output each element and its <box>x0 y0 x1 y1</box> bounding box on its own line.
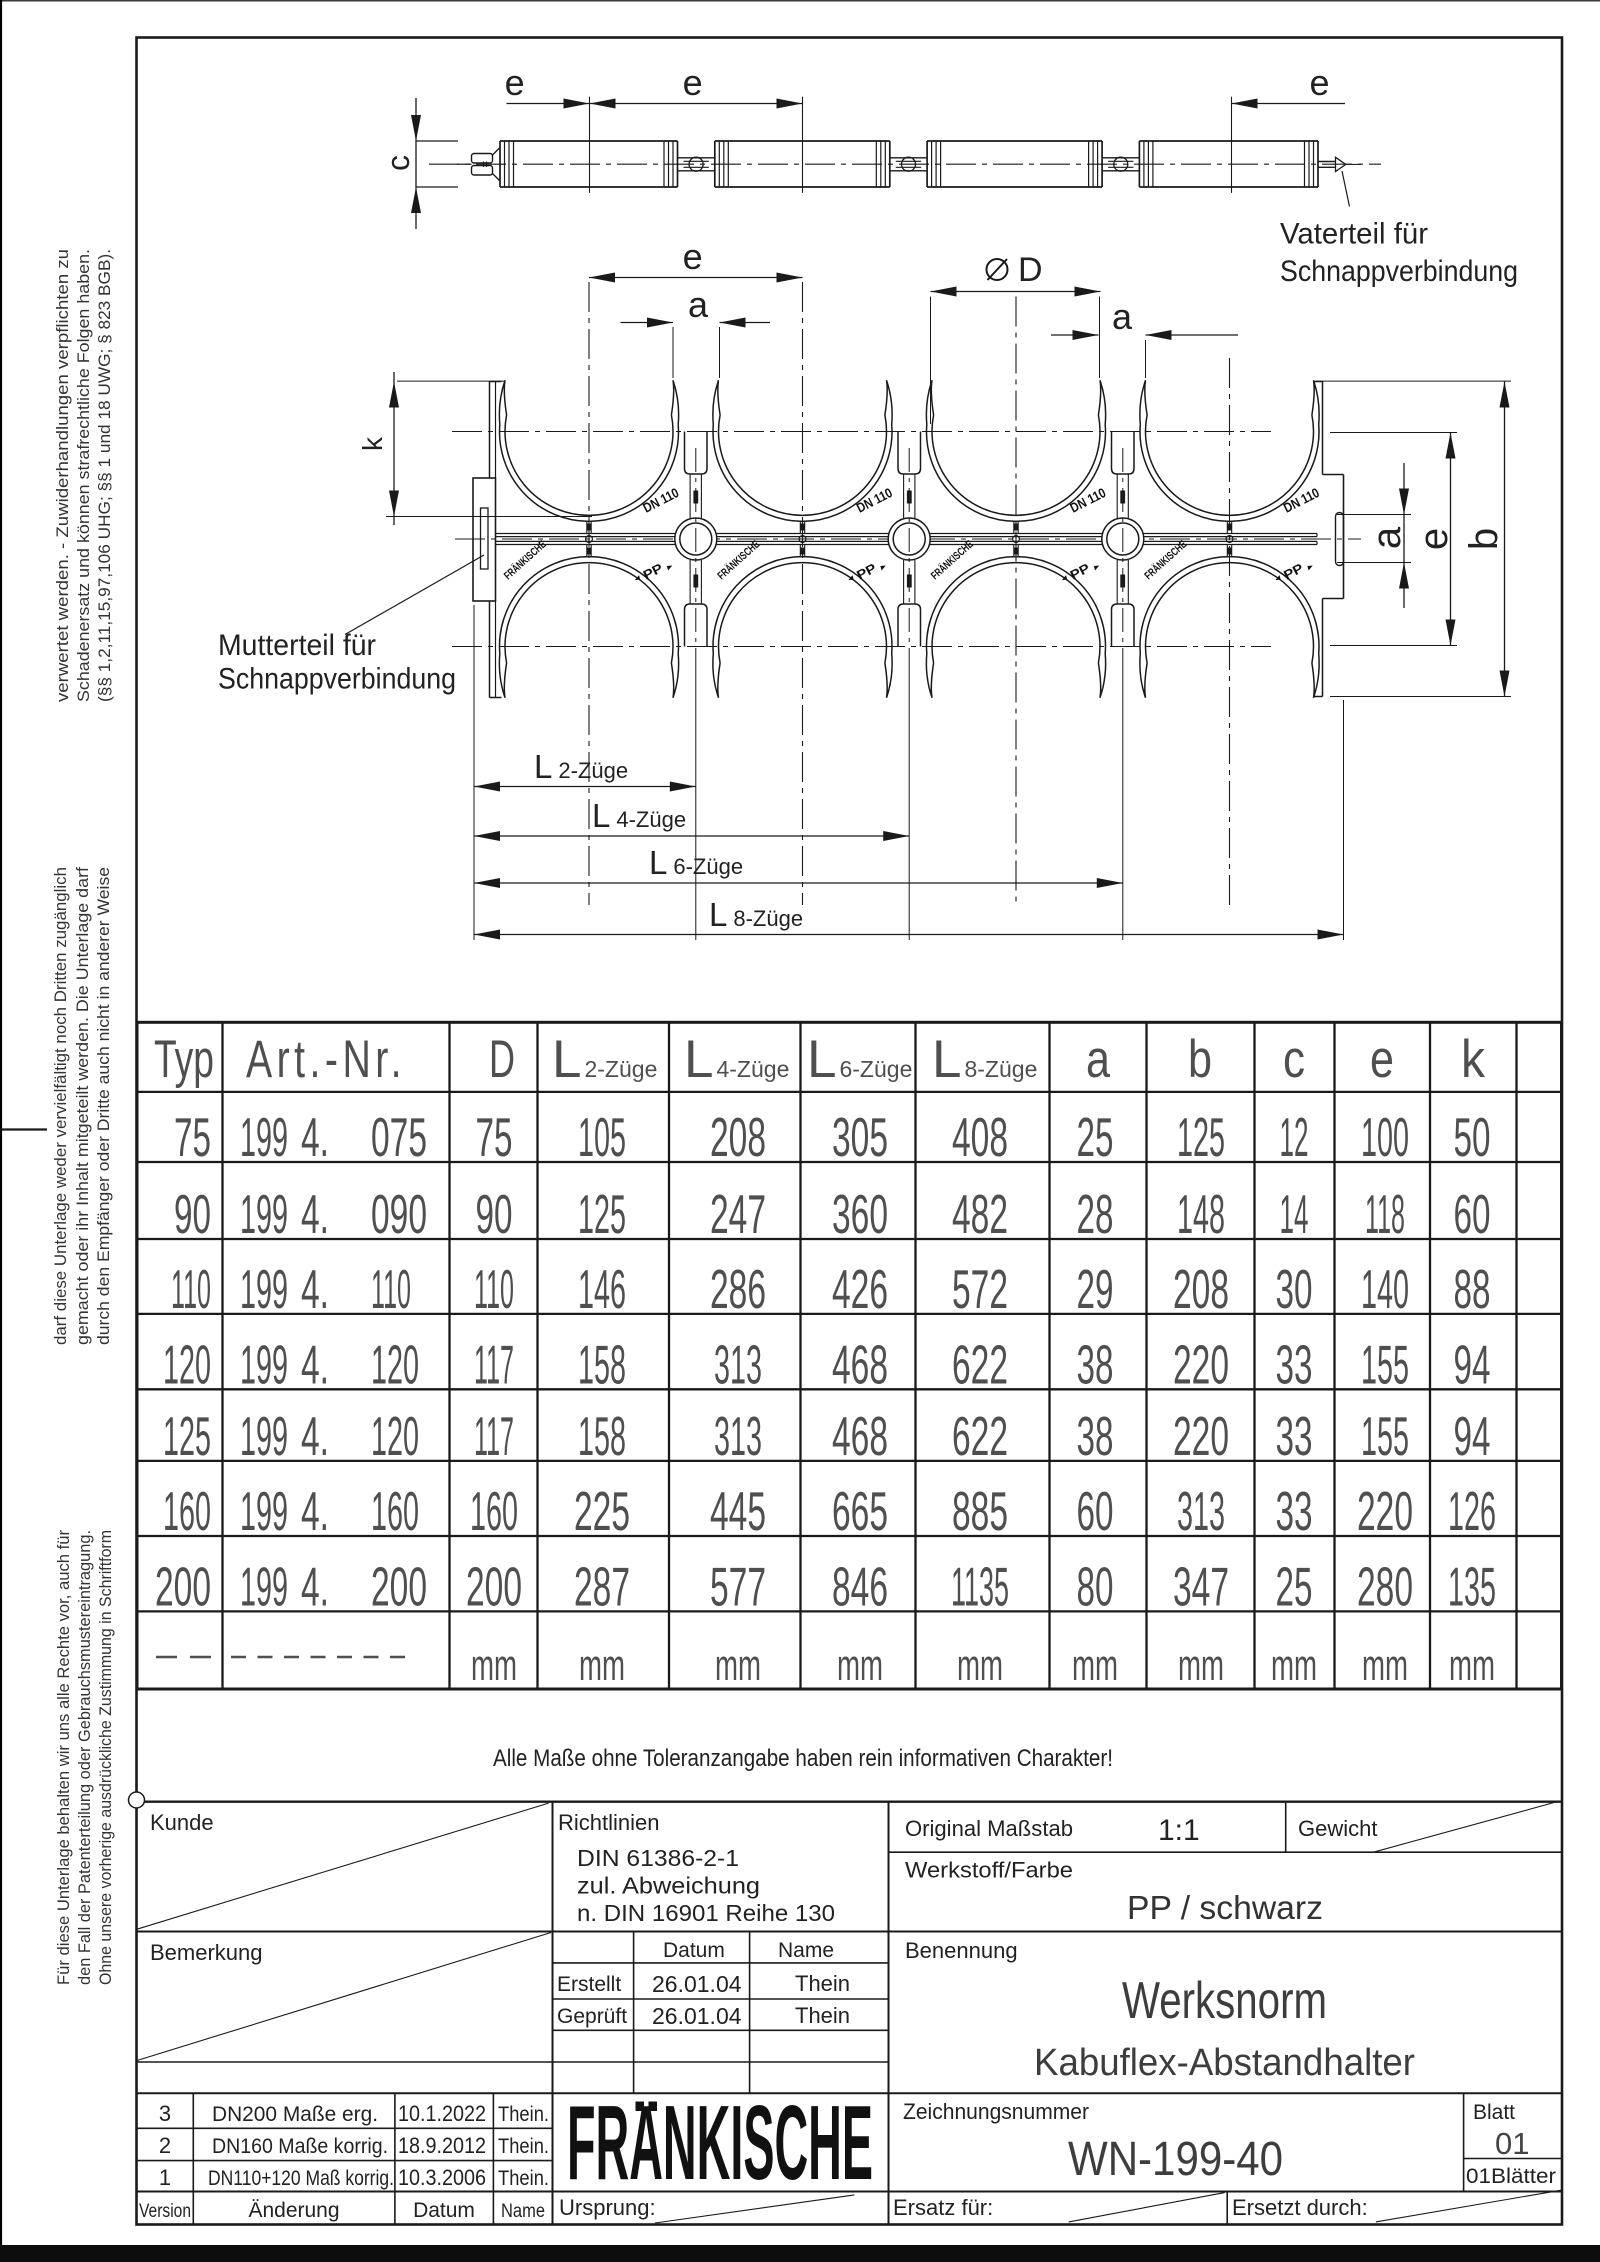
svg-text:50: 50 <box>1454 1106 1491 1168</box>
svg-text:110: 110 <box>171 1258 211 1320</box>
svg-text:665: 665 <box>832 1480 888 1542</box>
svg-text:Werkstoff/Farbe: Werkstoff/Farbe <box>905 1858 1073 1883</box>
svg-text:622: 622 <box>952 1405 1008 1467</box>
svg-text:25: 25 <box>1276 1555 1313 1617</box>
svg-text:445: 445 <box>710 1480 766 1542</box>
svg-text:426: 426 <box>832 1258 888 1320</box>
svg-text:38: 38 <box>1077 1405 1114 1467</box>
svg-text:DIN 61386-2-1: DIN 61386-2-1 <box>577 1845 739 1871</box>
svg-text:mm: mm <box>471 1641 517 1690</box>
svg-text:Thein.: Thein. <box>498 2135 549 2158</box>
svg-text:Bemerkung: Bemerkung <box>150 1940 263 1965</box>
svg-text:4.: 4. <box>301 1333 329 1395</box>
svg-text:26.01.04: 26.01.04 <box>652 2003 742 2029</box>
svg-text:D: D <box>1018 251 1043 289</box>
svg-text:225: 225 <box>574 1480 630 1542</box>
svg-text:117: 117 <box>474 1405 514 1467</box>
svg-text:846: 846 <box>832 1555 888 1617</box>
svg-text:12: 12 <box>1280 1106 1309 1168</box>
svg-text:WN-199-40: WN-199-40 <box>1068 2133 1283 2186</box>
svg-text:4.: 4. <box>301 1106 329 1168</box>
svg-text:Typ: Typ <box>154 1030 214 1089</box>
svg-text:e: e <box>1412 528 1456 550</box>
svg-text:Blatt: Blatt <box>1473 2101 1515 2124</box>
svg-text:mm: mm <box>957 1641 1003 1690</box>
svg-text:146: 146 <box>578 1258 626 1320</box>
svg-text:622: 622 <box>952 1333 1008 1395</box>
svg-text:14: 14 <box>1280 1183 1309 1245</box>
svg-text:Ersatz für:: Ersatz für: <box>893 2195 993 2220</box>
svg-text:313: 313 <box>1177 1480 1225 1542</box>
svg-text:88: 88 <box>1454 1258 1491 1320</box>
svg-text:10.3.2006: 10.3.2006 <box>398 2165 486 2190</box>
svg-text:mm: mm <box>1362 1641 1408 1690</box>
svg-text:25: 25 <box>1077 1106 1114 1168</box>
svg-text:Ersetzt durch:: Ersetzt durch: <box>1232 2195 1368 2220</box>
svg-text:199: 199 <box>240 1555 288 1617</box>
svg-text:28: 28 <box>1077 1183 1114 1245</box>
svg-text:60: 60 <box>1077 1480 1114 1542</box>
svg-text:60: 60 <box>1454 1183 1491 1245</box>
svg-text:(§§ 1,2,11,15,97,106 UHG; §§ 1: (§§ 1,2,11,15,97,106 UHG; §§ 1 und 18 UW… <box>96 249 114 702</box>
svg-text:Thein: Thein <box>795 2003 850 2028</box>
svg-text:mm: mm <box>1271 1641 1317 1690</box>
svg-text:305: 305 <box>832 1106 888 1168</box>
svg-text:120: 120 <box>163 1333 211 1395</box>
svg-text:94: 94 <box>1454 1405 1491 1467</box>
svg-text:199: 199 <box>240 1405 288 1467</box>
svg-text:gemacht oder ihr Inhalt mitget: gemacht oder ihr Inhalt mitgeteilt werde… <box>74 867 92 1345</box>
svg-text:DN110+120 Maß korrig.: DN110+120 Maß korrig. <box>208 2167 394 2190</box>
svg-text:e: e <box>683 236 703 277</box>
svg-text:4.: 4. <box>301 1258 329 1320</box>
svg-text:199: 199 <box>240 1333 288 1395</box>
svg-text:105: 105 <box>578 1106 626 1168</box>
svg-text:155: 155 <box>1361 1333 1409 1395</box>
svg-text:199: 199 <box>240 1480 288 1542</box>
svg-text:3: 3 <box>159 2101 171 2126</box>
svg-text:160: 160 <box>371 1480 419 1542</box>
svg-text:Änderung: Änderung <box>248 2199 339 2222</box>
svg-text:135: 135 <box>1448 1555 1496 1617</box>
svg-text:126: 126 <box>1448 1480 1496 1542</box>
svg-text:4.: 4. <box>301 1405 329 1467</box>
svg-text:durch den Empfänger oder Dritt: durch den Empfänger oder Dritte auch nic… <box>95 867 113 1345</box>
svg-text:4.: 4. <box>301 1183 329 1245</box>
svg-text:mm: mm <box>1178 1641 1224 1690</box>
svg-text:4.: 4. <box>301 1480 329 1542</box>
svg-text:c: c <box>380 155 416 171</box>
svg-text:100: 100 <box>1361 1106 1409 1168</box>
svg-text:360: 360 <box>832 1183 888 1245</box>
svg-text:b: b <box>1188 1030 1212 1089</box>
svg-text:220: 220 <box>1173 1405 1229 1467</box>
svg-text:200: 200 <box>155 1555 211 1617</box>
svg-text:darf diese Unterlage weder ver: darf diese Unterlage weder vervielfältig… <box>52 867 70 1345</box>
svg-text:Alle Maße ohne Toleranzangabe: Alle Maße ohne Toleranzangabe haben rein… <box>493 1745 1113 1772</box>
svg-text:c: c <box>1283 1030 1305 1089</box>
svg-text:4.: 4. <box>301 1555 329 1617</box>
svg-text:280: 280 <box>1357 1555 1413 1617</box>
svg-text:577: 577 <box>710 1555 766 1617</box>
svg-text:26.01.04: 26.01.04 <box>652 1971 742 1997</box>
svg-text:Datum: Datum <box>663 1939 725 1962</box>
svg-text:verwertet werden. - Zuwiderhan: verwertet werden. - Zuwiderhandlungen ve… <box>54 249 72 702</box>
svg-text:mm: mm <box>1072 1641 1118 1690</box>
svg-text:Name: Name <box>501 2201 545 2222</box>
svg-text:313: 313 <box>714 1405 762 1467</box>
svg-text:Schnappverbindung: Schnappverbindung <box>1280 255 1518 288</box>
svg-text:Gewicht: Gewicht <box>1298 1816 1377 1841</box>
svg-text:199: 199 <box>240 1106 288 1168</box>
svg-text:e: e <box>1309 62 1329 103</box>
svg-text:Mutterteil für: Mutterteil für <box>218 629 376 662</box>
svg-text:Thein: Thein <box>795 1971 850 1996</box>
svg-text:90: 90 <box>476 1183 513 1245</box>
svg-text:Geprüft: Geprüft <box>557 2005 627 2028</box>
svg-text:Für diese Unterlage behalten w: Für diese Unterlage behalten wir uns all… <box>55 1530 73 1985</box>
svg-text:1: 1 <box>159 2165 171 2190</box>
svg-text:2: 2 <box>159 2133 171 2158</box>
svg-text:468: 468 <box>832 1405 888 1467</box>
svg-text:200: 200 <box>466 1555 522 1617</box>
svg-text:286: 286 <box>710 1258 766 1320</box>
svg-text:75: 75 <box>476 1106 513 1168</box>
svg-text:117: 117 <box>474 1333 514 1395</box>
svg-text:160: 160 <box>163 1480 211 1542</box>
svg-text:220: 220 <box>1357 1480 1413 1542</box>
svg-text:Richtlinien: Richtlinien <box>558 1810 660 1835</box>
svg-text:DN200 Maße erg.: DN200 Maße erg. <box>212 2103 378 2126</box>
svg-text:18.9.2012: 18.9.2012 <box>398 2133 486 2158</box>
svg-text:Ohne unsere vorherige ausdrück: Ohne unsere vorherige ausdrückliche Zust… <box>97 1530 115 1985</box>
svg-text:mm: mm <box>837 1641 883 1690</box>
svg-text:155: 155 <box>1361 1405 1409 1467</box>
svg-text:090: 090 <box>371 1183 427 1245</box>
svg-text:zul. Abweichung: zul. Abweichung <box>577 1873 760 1899</box>
svg-text:80: 80 <box>1077 1555 1114 1617</box>
svg-text:199: 199 <box>240 1258 288 1320</box>
svg-text:den Fall der Patenterteilung o: den Fall der Patenterteilung oder Gebrau… <box>76 1530 94 1985</box>
svg-text:247: 247 <box>710 1183 766 1245</box>
svg-text:148: 148 <box>1177 1183 1225 1245</box>
svg-text:Name: Name <box>778 1939 834 1962</box>
svg-text:Zeichnungsnummer: Zeichnungsnummer <box>903 2099 1089 2124</box>
svg-text:Benennung: Benennung <box>905 1938 1018 1963</box>
svg-text:FRANKISCHE: FRANKISCHE <box>567 2084 873 2202</box>
svg-text:a: a <box>1112 296 1133 337</box>
svg-text:468: 468 <box>832 1333 888 1395</box>
svg-text:160: 160 <box>470 1480 518 1542</box>
svg-text:29: 29 <box>1077 1258 1114 1320</box>
svg-text:120: 120 <box>371 1333 419 1395</box>
svg-text:Art.-Nr.: Art.-Nr. <box>246 1030 406 1089</box>
svg-text:140: 140 <box>1361 1258 1409 1320</box>
svg-text:110: 110 <box>371 1258 411 1320</box>
svg-text:01Blätter: 01Blätter <box>1466 2165 1556 2188</box>
svg-text:DN160 Maße korrig.: DN160 Maße korrig. <box>212 2135 388 2158</box>
svg-text:mm: mm <box>579 1641 625 1690</box>
svg-text:01: 01 <box>1495 2126 1529 2161</box>
svg-text:Ursprung:: Ursprung: <box>559 2195 656 2220</box>
svg-text:Schadenersatz und können straf: Schadenersatz und können strafrechtliche… <box>75 249 93 702</box>
svg-text:Erstellt: Erstellt <box>557 1973 621 1996</box>
svg-text:885: 885 <box>952 1480 1008 1542</box>
svg-text:e: e <box>505 62 525 103</box>
svg-text:a: a <box>688 284 709 325</box>
svg-text:Kunde: Kunde <box>150 1810 214 1835</box>
svg-text:208: 208 <box>710 1106 766 1168</box>
svg-text:110: 110 <box>474 1258 514 1320</box>
svg-text:158: 158 <box>578 1405 626 1467</box>
svg-text:Original Maßstab: Original Maßstab <box>905 1816 1073 1841</box>
svg-text:Datum: Datum <box>413 2199 475 2222</box>
svg-text:220: 220 <box>1173 1333 1229 1395</box>
svg-text:38: 38 <box>1077 1333 1114 1395</box>
svg-text:118: 118 <box>1365 1183 1405 1245</box>
svg-text:Kabuflex-Abstandhalter: Kabuflex-Abstandhalter <box>1034 2042 1415 2084</box>
svg-text:287: 287 <box>574 1555 630 1617</box>
svg-text:mm: mm <box>1449 1641 1495 1690</box>
svg-text:D: D <box>489 1030 515 1089</box>
svg-text:75: 75 <box>174 1106 211 1168</box>
svg-text:1135: 1135 <box>951 1555 1009 1617</box>
svg-text:1:1: 1:1 <box>1158 1814 1200 1847</box>
svg-text:e: e <box>683 62 703 103</box>
svg-text:33: 33 <box>1276 1333 1313 1395</box>
svg-text:90: 90 <box>174 1183 211 1245</box>
svg-text:Vaterteil für: Vaterteil für <box>1280 218 1428 251</box>
svg-text:125: 125 <box>578 1183 626 1245</box>
svg-text:Version: Version <box>139 2201 191 2222</box>
svg-text:158: 158 <box>578 1333 626 1395</box>
svg-text:e: e <box>1370 1030 1394 1089</box>
svg-text:Thein.: Thein. <box>498 2167 549 2190</box>
svg-text:a: a <box>1365 526 1409 549</box>
svg-text:33: 33 <box>1276 1405 1313 1467</box>
svg-text:125: 125 <box>1177 1106 1225 1168</box>
svg-text:30: 30 <box>1276 1258 1313 1320</box>
svg-text:k: k <box>1461 1030 1485 1089</box>
svg-text:120: 120 <box>371 1405 419 1467</box>
svg-text:Thein.: Thein. <box>498 2103 549 2126</box>
svg-text:482: 482 <box>952 1183 1008 1245</box>
svg-text:33: 33 <box>1276 1480 1313 1542</box>
svg-text:208: 208 <box>1173 1258 1229 1320</box>
svg-text:075: 075 <box>371 1106 427 1168</box>
svg-text:408: 408 <box>952 1106 1008 1168</box>
svg-text:125: 125 <box>163 1405 211 1467</box>
svg-text:347: 347 <box>1173 1555 1229 1617</box>
svg-text:mm: mm <box>715 1641 761 1690</box>
svg-text:313: 313 <box>714 1333 762 1395</box>
svg-text:199: 199 <box>240 1183 288 1245</box>
svg-text:PP / schwarz: PP / schwarz <box>1127 1889 1323 1926</box>
svg-text:94: 94 <box>1454 1333 1491 1395</box>
svg-text:n. DIN 16901 Reihe 130: n. DIN 16901 Reihe 130 <box>577 1900 835 1926</box>
svg-text:Werksnorm: Werksnorm <box>1122 1972 1327 2030</box>
svg-text:572: 572 <box>952 1258 1008 1320</box>
svg-text:k: k <box>357 436 388 451</box>
svg-text:Schnappverbindung: Schnappverbindung <box>218 663 456 696</box>
svg-text:200: 200 <box>371 1555 427 1617</box>
svg-text:b: b <box>1462 528 1506 550</box>
svg-text:a: a <box>1086 1030 1110 1089</box>
svg-text:10.1.2022: 10.1.2022 <box>398 2101 486 2126</box>
